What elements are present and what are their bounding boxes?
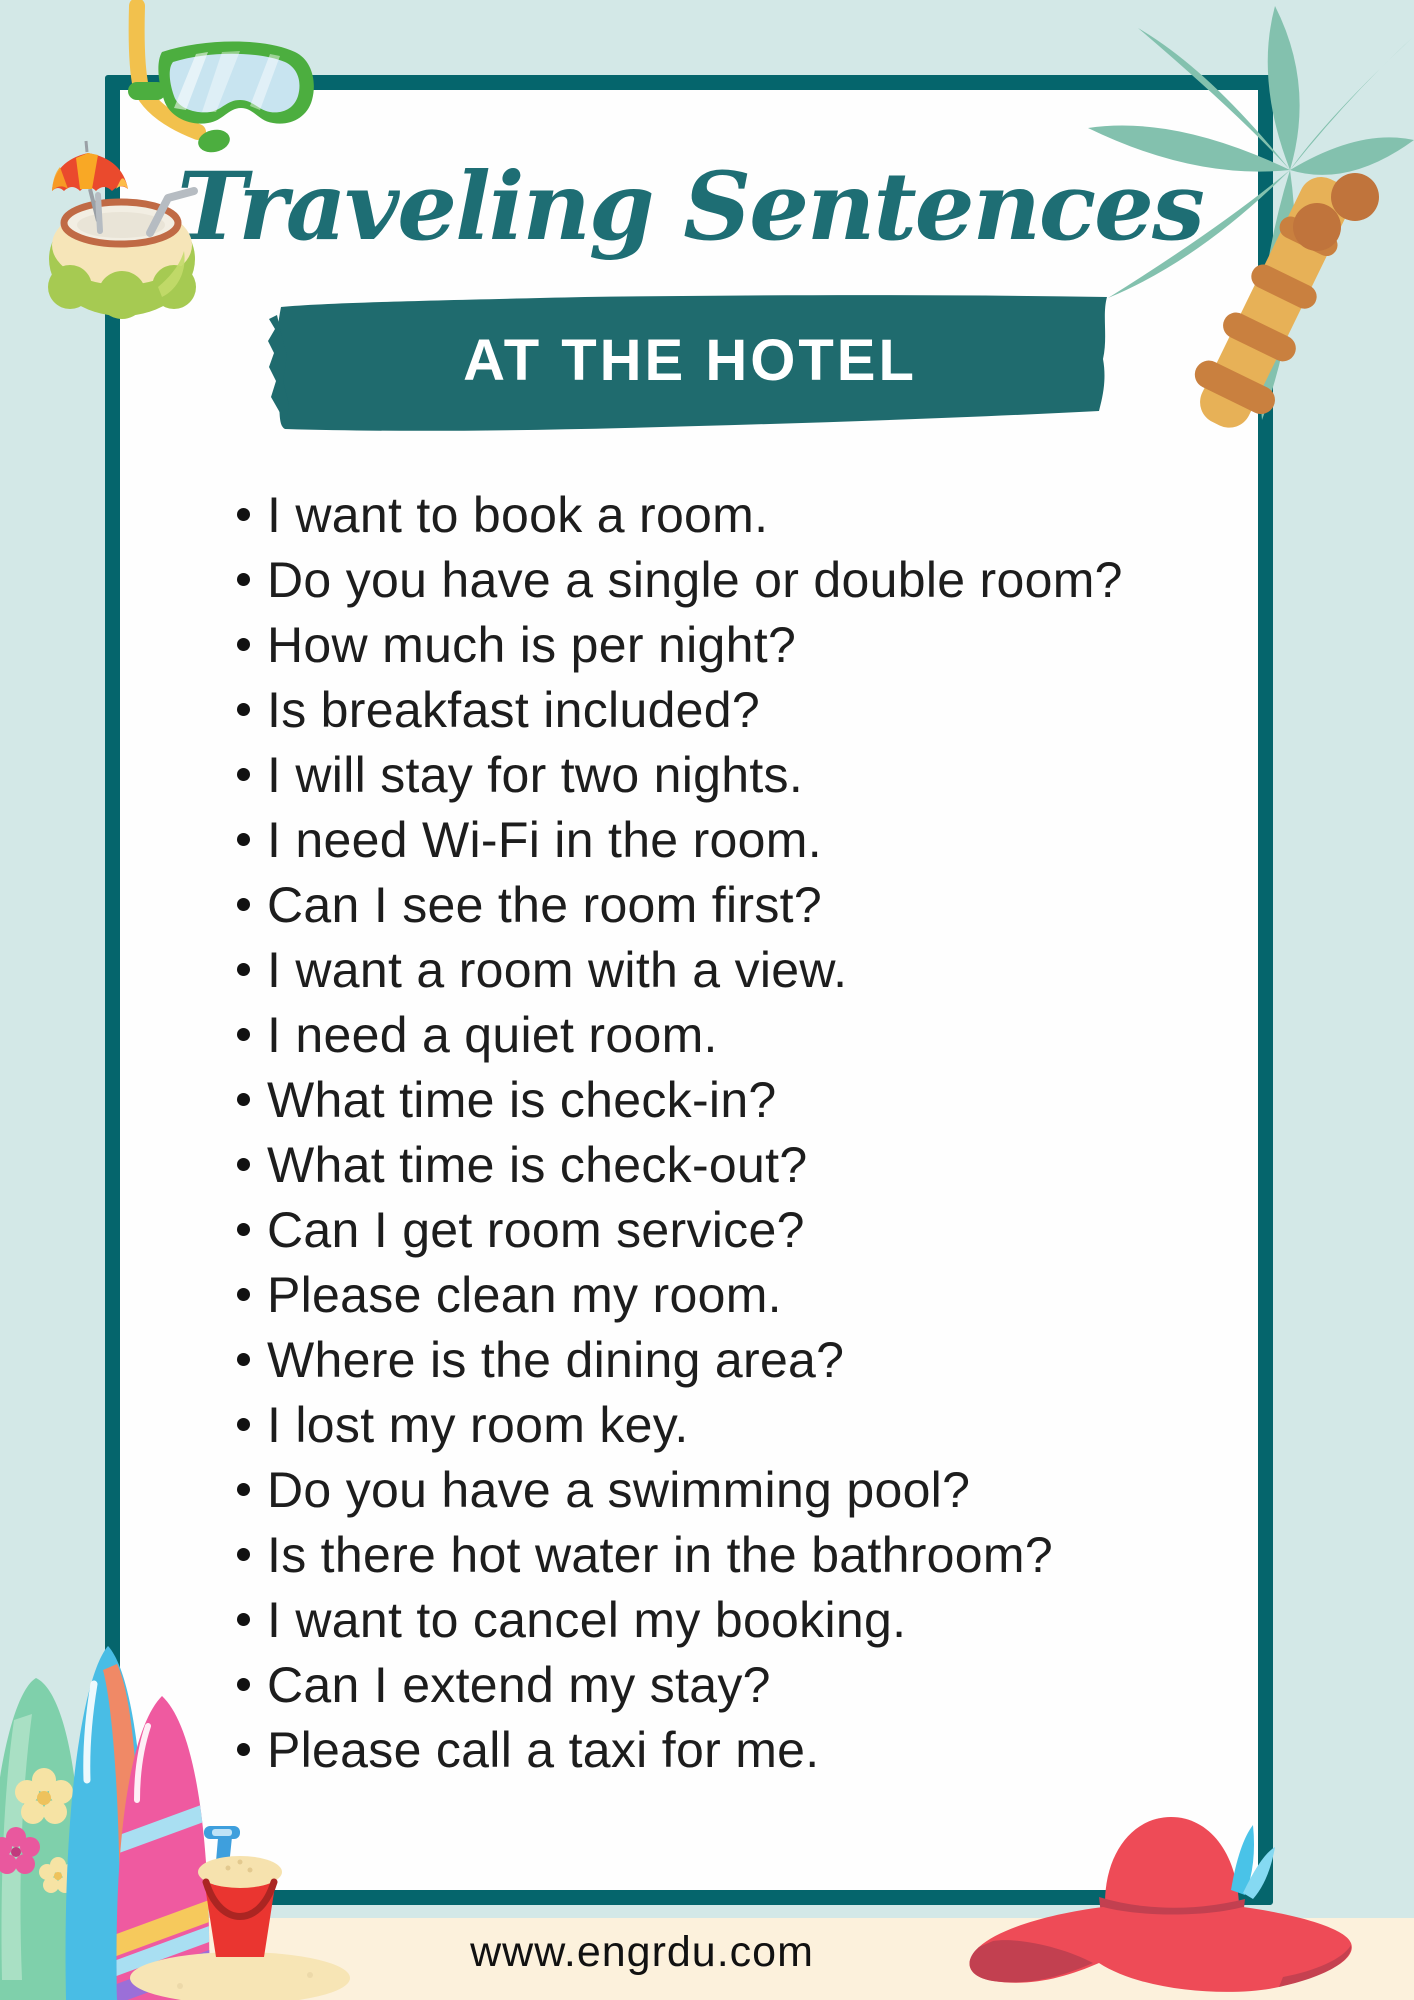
bullet-icon bbox=[237, 703, 250, 716]
hat-feather bbox=[1231, 1825, 1275, 1899]
banner-label: AT THE HOTEL bbox=[265, 285, 1115, 435]
palm-tree-icon bbox=[1080, 0, 1414, 430]
list-item: Is there hot water in the bathroom? bbox=[237, 1522, 1247, 1587]
sentence-list: I want to book a room.Do you have a sing… bbox=[237, 482, 1247, 1782]
sentence-text: I want to book a room. bbox=[267, 486, 768, 544]
sentence-text: Is breakfast included? bbox=[267, 681, 760, 739]
sentence-text: Do you have a swimming pool? bbox=[267, 1461, 970, 1519]
bullet-icon bbox=[237, 1158, 250, 1171]
sentence-text: Can I get room service? bbox=[267, 1201, 805, 1259]
hat-crown bbox=[1105, 1817, 1239, 1912]
sentence-text: I lost my room key. bbox=[267, 1396, 689, 1454]
bullet-icon bbox=[237, 508, 250, 521]
list-item: Can I get room service? bbox=[237, 1197, 1247, 1262]
bullet-icon bbox=[237, 1093, 250, 1106]
sentence-text: I need a quiet room. bbox=[267, 1006, 718, 1064]
sentence-text: Where is the dining area? bbox=[267, 1331, 844, 1389]
coconut-fruit bbox=[1293, 203, 1341, 251]
list-item: How much is per night? bbox=[237, 612, 1247, 677]
list-item: I need a quiet room. bbox=[237, 1002, 1247, 1067]
sentence-text: How much is per night? bbox=[267, 616, 796, 674]
sentence-text: What time is check-out? bbox=[267, 1136, 807, 1194]
coconut-drink-icon bbox=[40, 125, 210, 335]
list-item: What time is check-in? bbox=[237, 1067, 1247, 1132]
list-item: Can I see the room first? bbox=[237, 872, 1247, 937]
bullet-icon bbox=[237, 1028, 250, 1041]
sentence-text: Can I see the room first? bbox=[267, 876, 822, 934]
sentence-text: I will stay for two nights. bbox=[267, 746, 803, 804]
list-item: Do you have a single or double room? bbox=[237, 547, 1247, 612]
sentence-text: Is there hot water in the bathroom? bbox=[267, 1526, 1053, 1584]
sentence-text: Please clean my room. bbox=[267, 1266, 782, 1324]
coconut-fruit bbox=[1331, 173, 1379, 221]
bullet-icon bbox=[237, 898, 250, 911]
list-item: I will stay for two nights. bbox=[237, 742, 1247, 807]
beach-hat-icon bbox=[905, 1795, 1375, 2000]
sentence-text: I want a room with a view. bbox=[267, 941, 847, 999]
bullet-icon bbox=[237, 1483, 250, 1496]
sentence-text: Do you have a single or double room? bbox=[267, 551, 1123, 609]
bullet-icon bbox=[237, 1288, 250, 1301]
bullet-icon bbox=[237, 1353, 250, 1366]
bullet-icon bbox=[237, 1548, 250, 1561]
list-item: Please clean my room. bbox=[237, 1262, 1247, 1327]
list-item: I want to book a room. bbox=[237, 482, 1247, 547]
bullet-icon bbox=[237, 963, 250, 976]
bullet-icon bbox=[237, 833, 250, 846]
surfboards-icon bbox=[0, 1630, 470, 2000]
list-item: I lost my room key. bbox=[237, 1392, 1247, 1457]
bullet-icon bbox=[237, 638, 250, 651]
sentence-text: What time is check-in? bbox=[267, 1071, 777, 1129]
list-item: What time is check-out? bbox=[237, 1132, 1247, 1197]
list-item: I need Wi-Fi in the room. bbox=[237, 807, 1247, 872]
bullet-icon bbox=[237, 573, 250, 586]
bullet-icon bbox=[237, 1223, 250, 1236]
bullet-icon bbox=[237, 768, 250, 781]
list-item: Do you have a swimming pool? bbox=[237, 1457, 1247, 1522]
bullet-icon bbox=[237, 1418, 250, 1431]
list-item: Where is the dining area? bbox=[237, 1327, 1247, 1392]
bullet-icon bbox=[237, 1613, 250, 1626]
straw bbox=[98, 195, 100, 231]
sentence-text: I need Wi-Fi in the room. bbox=[267, 811, 822, 869]
list-item: I want a room with a view. bbox=[237, 937, 1247, 1002]
list-item: Is breakfast included? bbox=[237, 677, 1247, 742]
